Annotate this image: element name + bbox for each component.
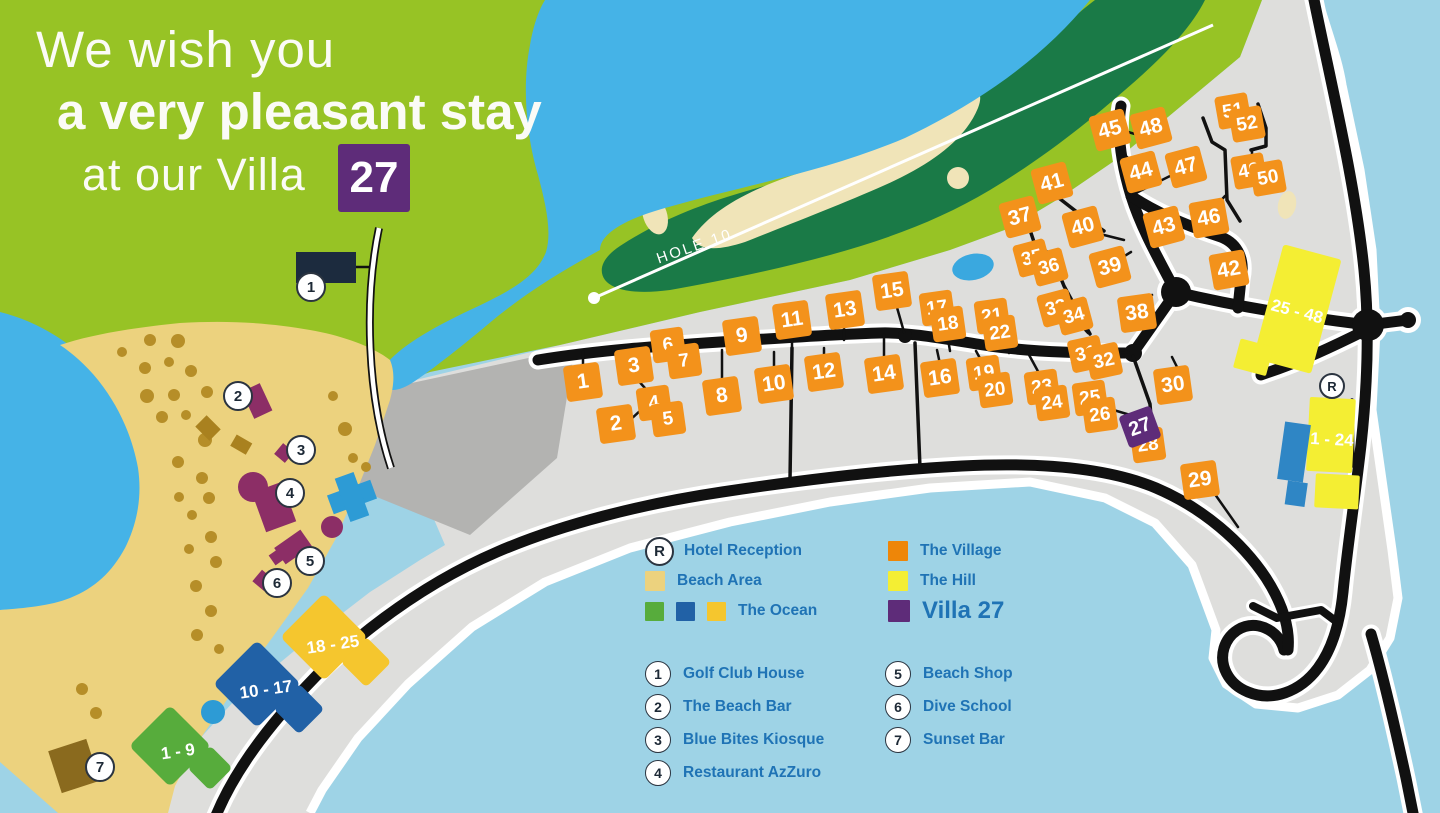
legend-poi-label: Dive School <box>923 698 1012 716</box>
building-label-1-24: 1 - 24 <box>1310 429 1354 451</box>
legend-poi-2: 2The Beach Bar <box>645 693 792 720</box>
legend-poi-number: 5 <box>885 661 911 687</box>
legend-area-hotel-reception: RHotel Reception <box>645 537 802 565</box>
legend-label: Hotel Reception <box>684 542 802 560</box>
villa-marker-45: 45 <box>1088 108 1132 152</box>
villa-marker-36: 36 <box>1029 247 1069 287</box>
villa-marker-18: 18 <box>929 305 966 342</box>
villa-marker-39: 39 <box>1088 245 1132 289</box>
villa-marker-12: 12 <box>804 352 845 393</box>
legend-swatch <box>645 571 665 591</box>
villa-marker-2: 2 <box>596 404 637 445</box>
legend-label: The Hill <box>920 572 976 590</box>
villa-marker-50: 50 <box>1249 159 1287 197</box>
villa-marker-15: 15 <box>872 271 913 312</box>
legend-label: Villa 27 <box>922 597 1004 625</box>
building-label-18-25: 18 - 25 <box>305 631 360 658</box>
villa-marker-7: 7 <box>665 342 702 379</box>
villa-marker-24: 24 <box>1033 384 1070 421</box>
legend-label: The Village <box>920 542 1002 560</box>
legend-poi-6: 6Dive School <box>885 693 1012 720</box>
legend-poi-label: Golf Club House <box>683 665 804 683</box>
villa-marker-10: 10 <box>754 364 795 405</box>
building-label-1-9: 1 - 9 <box>160 740 196 765</box>
villa-marker-3: 3 <box>614 346 655 387</box>
villa-marker-46: 46 <box>1188 197 1230 239</box>
legend-poi-label: The Beach Bar <box>683 698 792 716</box>
legend-swatch <box>888 571 908 591</box>
legend-area-beach-area: Beach Area <box>645 567 762 595</box>
villa-marker-20: 20 <box>976 371 1013 408</box>
villa-marker-40: 40 <box>1061 205 1105 249</box>
resort-welcome-map: We wish you a very pleasant stay at our … <box>0 0 1440 813</box>
villa-marker-5: 5 <box>649 400 686 437</box>
legend-poi-7: 7Sunset Bar <box>885 726 1005 753</box>
legend-poi-label: Beach Shop <box>923 665 1013 683</box>
poi-marker-7: 7 <box>85 752 115 782</box>
legend-poi-number: 7 <box>885 727 911 753</box>
villa-marker-11: 11 <box>772 300 813 341</box>
legend-label: Beach Area <box>677 572 762 590</box>
legend-swatch <box>645 602 664 621</box>
legend-poi-label: Sunset Bar <box>923 731 1005 749</box>
legend-swatch <box>888 541 908 561</box>
legend-poi-number: 2 <box>645 694 671 720</box>
legend-poi-4: 4Restaurant AzZuro <box>645 759 821 786</box>
legend-poi-number: 6 <box>885 694 911 720</box>
villa-marker-29: 29 <box>1180 460 1221 501</box>
poi-marker-1: 1 <box>296 272 326 302</box>
villa-marker-42: 42 <box>1208 249 1250 291</box>
poi-marker-6: 6 <box>262 568 292 598</box>
reception-legend-icon: R <box>645 537 674 566</box>
legend-swatch <box>888 600 910 622</box>
villa-marker-47: 47 <box>1164 145 1208 189</box>
villa-marker-52: 52 <box>1228 105 1266 143</box>
villa-marker-48: 48 <box>1129 106 1173 150</box>
legend-area-the-ocean: The Ocean <box>645 597 817 625</box>
villa-marker-1: 1 <box>563 362 604 403</box>
villa-marker-16: 16 <box>920 358 961 399</box>
poi-marker-4: 4 <box>275 478 305 508</box>
reception-marker: R <box>1319 373 1345 399</box>
legend-poi-5: 5Beach Shop <box>885 660 1013 687</box>
legend-area-the-hill: The Hill <box>888 567 976 595</box>
villa-marker-30: 30 <box>1153 365 1194 406</box>
legend-swatch <box>707 602 726 621</box>
title-line-2: a very pleasant stay <box>57 86 542 137</box>
villa-marker-41: 41 <box>1030 161 1074 205</box>
legend-poi-number: 3 <box>645 727 671 753</box>
title-line-3: at our Villa <box>82 152 306 197</box>
golf-hole-label: HOLE 10 <box>654 226 734 268</box>
villa-marker-14: 14 <box>864 354 905 395</box>
villa-marker-43: 43 <box>1142 205 1186 249</box>
legend-area-the-village: The Village <box>888 537 1002 565</box>
poi-marker-3: 3 <box>286 435 316 465</box>
villa-marker-13: 13 <box>825 290 866 331</box>
villa-number-badge: 27 <box>338 144 410 212</box>
villa-marker-37: 37 <box>998 195 1042 239</box>
villa-marker-8: 8 <box>702 376 743 417</box>
legend-poi-label: Blue Bites Kiosque <box>683 731 824 749</box>
legend-poi-3: 3Blue Bites Kiosque <box>645 726 824 753</box>
villa-marker-44: 44 <box>1119 150 1163 194</box>
legend-swatch <box>676 602 695 621</box>
building-label-10-17: 10 - 17 <box>238 676 293 703</box>
legend-poi-label: Restaurant AzZuro <box>683 764 821 782</box>
legend-poi-1: 1Golf Club House <box>645 660 804 687</box>
title-line-1: We wish you <box>36 24 335 75</box>
poi-marker-5: 5 <box>295 546 325 576</box>
legend-label: The Ocean <box>738 602 817 620</box>
legend-area-villa-27: Villa 27 <box>888 597 1004 625</box>
villa-marker-9: 9 <box>722 316 763 357</box>
villa-marker-34: 34 <box>1054 296 1094 336</box>
villa-marker-26: 26 <box>1081 396 1118 433</box>
legend-poi-number: 1 <box>645 661 671 687</box>
villa-marker-32: 32 <box>1084 341 1123 380</box>
villa-marker-38: 38 <box>1117 293 1158 334</box>
poi-marker-2: 2 <box>223 381 253 411</box>
legend-poi-number: 4 <box>645 760 671 786</box>
building-label-25-48: 25 - 48 <box>1269 295 1325 328</box>
villa-marker-22: 22 <box>981 314 1018 351</box>
